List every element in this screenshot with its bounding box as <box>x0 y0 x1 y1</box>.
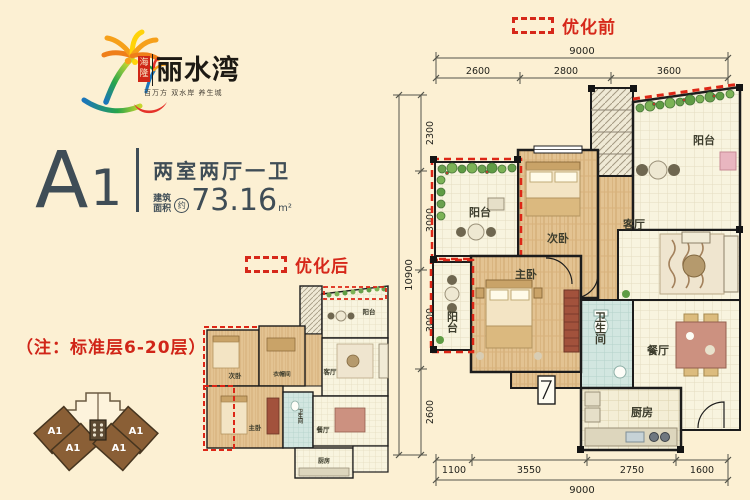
site-unit-label: A1 <box>129 426 144 437</box>
room-dining: 餐厅 <box>646 343 669 357</box>
floor-note: （注：标准层6-20层） <box>16 333 207 358</box>
room-cloak: 衣帽间 <box>273 370 291 378</box>
room-balcony: 阳台 <box>363 307 377 316</box>
red-dashed-box-icon <box>245 256 287 273</box>
floorplan-poster: 海隆 丽水湾 百万方 双水岸 养生城 A 1 两室两厅一卫 建筑面积 约 73.… <box>0 0 750 500</box>
room-bath: 卫生间 <box>594 311 607 345</box>
dim-top-3: 3600 <box>657 66 681 77</box>
dim-top-1: 2600 <box>466 66 490 77</box>
brand-seal: 海隆 <box>138 56 150 82</box>
approx-circle: 约 <box>174 198 189 213</box>
bed-graphic <box>476 280 542 360</box>
unit-title-block: A 1 两室两厅一卫 建筑面积 约 73.16 m² <box>35 146 292 216</box>
floorplan-after: 阳台 次卧 衣帽间 客厅 主卧 卫生间 <box>183 282 390 482</box>
dim-left-total: 10900 <box>404 259 415 291</box>
site-unit-label: A1 <box>48 426 63 437</box>
dim-top-total: 9000 <box>569 46 594 57</box>
dim-top-2: 2800 <box>554 66 578 77</box>
area-unit: m² <box>278 203 292 214</box>
room-second-bed: 次卧 <box>229 371 243 380</box>
room-master-bed: 主卧 <box>515 267 537 281</box>
room-balcony-ul: 阳台 <box>469 205 491 219</box>
site-plan: A1 A1 A1 A1 <box>22 380 187 492</box>
room-balcony-ll: 阳台 <box>446 310 459 334</box>
brand-divider <box>152 54 153 86</box>
dim-left: 10900 2300 3000 3000 2600 <box>393 92 436 458</box>
room-second-bed: 次卧 <box>547 231 569 245</box>
unit-layout: 两室两厅一卫 <box>153 155 292 184</box>
site-unit-label: A1 <box>112 443 127 454</box>
brand-tagline: 百万方 双水岸 养生城 <box>144 88 222 98</box>
dim-bottom-1: 1100 <box>442 465 466 476</box>
title-divider <box>136 148 139 212</box>
unit-letter: A <box>35 146 88 216</box>
palm-tree-graphic <box>84 32 167 113</box>
floorplan-before: 9000 2600 2800 3600 10900 2300 3000 3000… <box>388 40 750 500</box>
room-balcony-tr: 阳台 <box>693 133 715 147</box>
area-label: 建筑面积 <box>153 194 171 214</box>
red-dashed-box-icon <box>512 17 554 34</box>
entry-door-symbol <box>538 376 555 404</box>
room-dining: 餐厅 <box>316 425 331 434</box>
dim-left-1: 2300 <box>425 121 436 145</box>
area-value: 73.16 <box>191 188 277 214</box>
plan-body: 阳台 客厅 餐厅 <box>430 84 743 453</box>
hallway <box>305 334 322 386</box>
dim-bottom-2: 3550 <box>517 465 541 476</box>
dim-left-4: 2600 <box>425 400 436 424</box>
room-kitchen: 厨房 <box>631 405 653 419</box>
site-unit-label: A1 <box>66 443 81 454</box>
room-living: 客厅 <box>323 367 338 376</box>
wardrobe-graphic <box>564 290 579 352</box>
label-before-optimize: 优化前 <box>512 13 616 38</box>
room-kitchen: 厨房 <box>318 457 330 465</box>
label-after-optimize: 优化后 <box>245 252 349 277</box>
plan-after-body: 阳台 次卧 衣帽间 客厅 主卧 卫生间 <box>204 286 388 478</box>
brand-name: 丽水湾 <box>156 48 240 87</box>
brand-logo: 海隆 丽水湾 百万方 双水岸 养生城 <box>78 24 318 119</box>
bed-graphic <box>526 162 580 216</box>
core-shaft <box>90 420 106 440</box>
dim-bottom-3: 2750 <box>620 465 644 476</box>
entry <box>353 446 388 472</box>
dim-top: 9000 2600 2800 3600 <box>433 46 731 84</box>
room-master-bed: 主卧 <box>249 423 263 432</box>
balcony <box>322 286 388 338</box>
dining-table-graphic <box>676 314 726 376</box>
dim-bottom: 1100 3550 2750 1600 9000 <box>433 454 731 496</box>
dim-bottom-total: 9000 <box>569 485 594 496</box>
room-bath: 卫生间 <box>297 408 303 425</box>
room-living: 客厅 <box>622 217 645 231</box>
unit-number: 1 <box>90 160 122 216</box>
dim-bottom-4: 1600 <box>690 465 714 476</box>
